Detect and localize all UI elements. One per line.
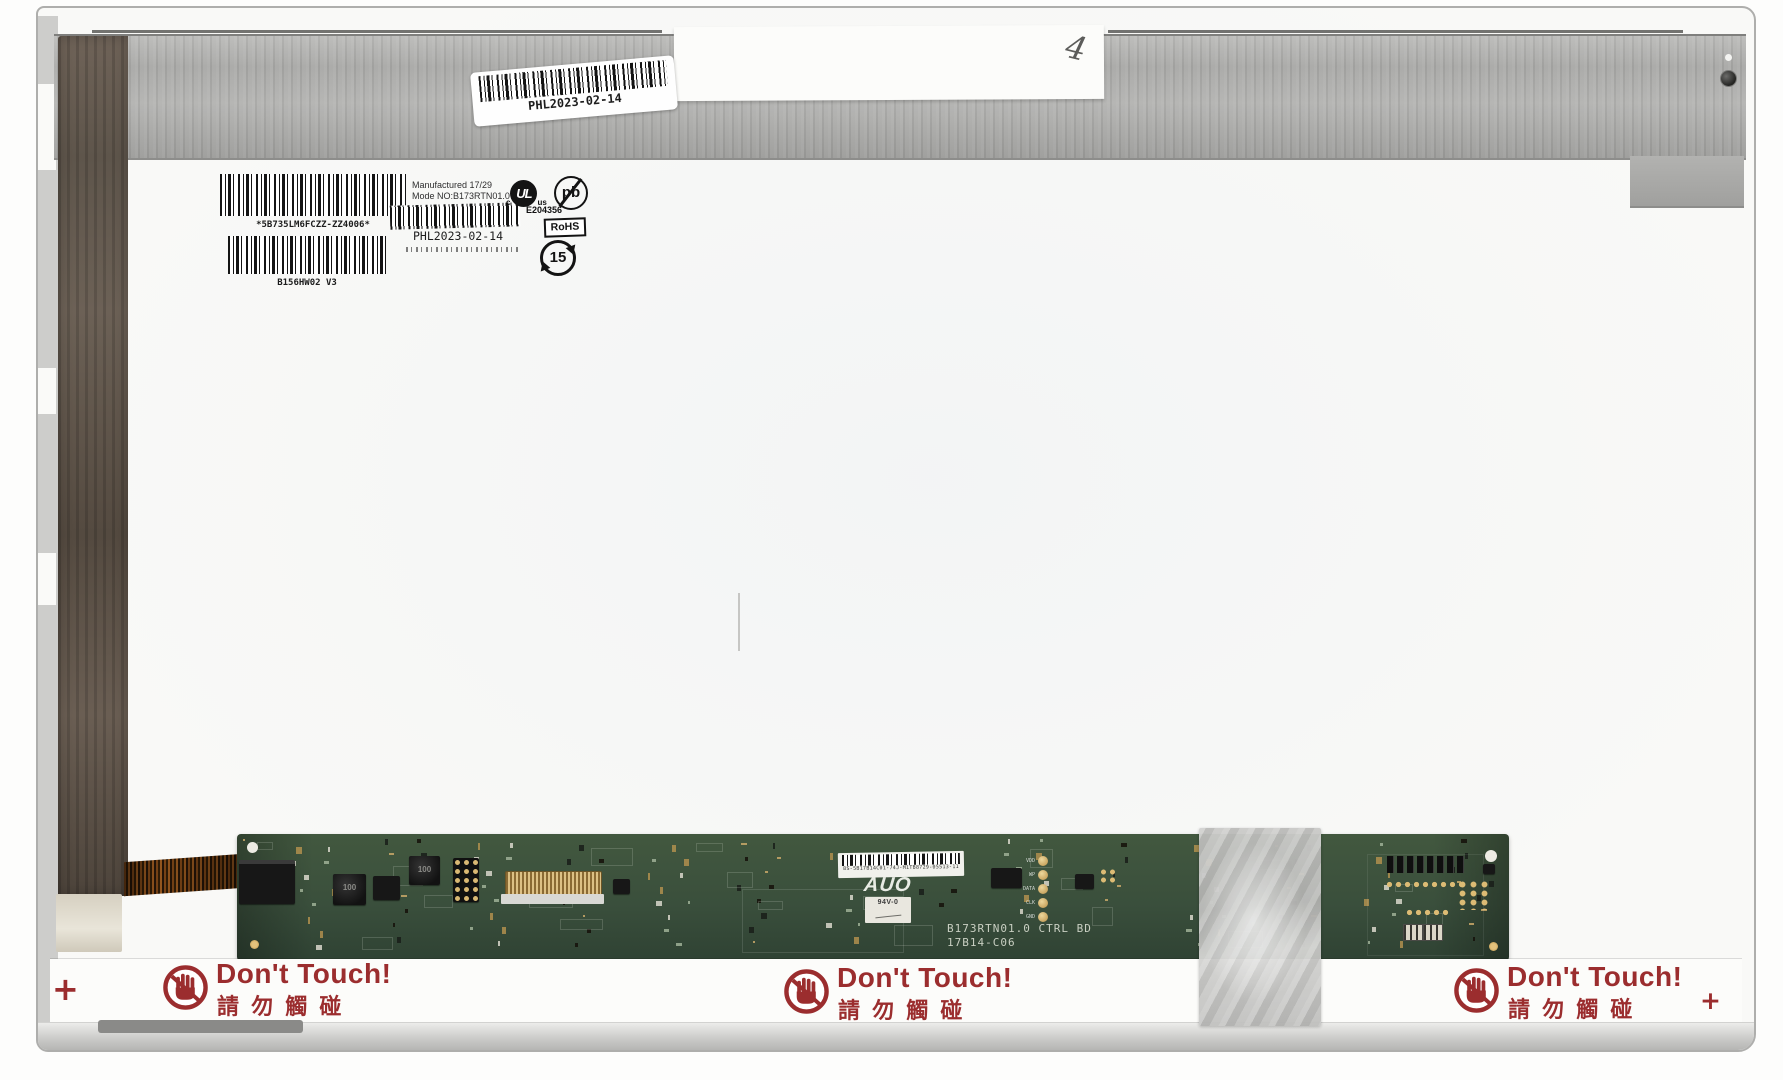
serial-caption: *5B735LM6FCZZ-ZZ4006* (206, 220, 420, 230)
warning-title: Don't Touch! (837, 962, 1012, 994)
ul-logo: UL (510, 180, 537, 207)
dip-switch (1423, 924, 1443, 941)
ic-chip (613, 879, 630, 894)
pcb-hole (247, 842, 258, 853)
pin-header (453, 858, 479, 902)
model-barcode (228, 236, 386, 274)
serial-barcode (220, 174, 406, 216)
mfg-model-text: Mode NO:B173RTN01.0 (412, 191, 510, 201)
mfg-date-text: Manufactured 17/29 (412, 180, 492, 190)
inductor-value: 100 (333, 874, 366, 905)
testpoint-pad (1038, 912, 1048, 922)
dip-switch (1403, 924, 1423, 941)
board-code: 17B14-C06 (947, 936, 1016, 949)
ul-file-number: E204356 (526, 205, 562, 215)
testpoint-label: VDD (1007, 858, 1035, 864)
warning-title: Don't Touch! (1507, 961, 1682, 993)
registration-mark: + (1700, 986, 1721, 1015)
lead-free-icon: pb (554, 176, 588, 210)
rohs-badge: RoHS (544, 217, 587, 237)
inductor-value: 100 (409, 856, 440, 885)
inductor: 100 (409, 856, 440, 885)
gold-pads (1099, 868, 1119, 884)
testpoint-pad (1038, 870, 1048, 880)
pcb-testpad (1489, 942, 1498, 951)
warning-subtitle: 請 勿 觸 碰 (838, 993, 965, 1025)
recycle-15-icon: 15 (540, 240, 576, 276)
auo-logo: AUO (863, 874, 913, 897)
warning-subtitle: 請 勿 觸 碰 (1508, 992, 1635, 1024)
pin-header-row (1387, 856, 1467, 873)
testpoint-label: CLK (1007, 900, 1035, 906)
warning-subtitle: 請 勿 觸 碰 (217, 989, 344, 1021)
handwritten-scrawl (875, 908, 902, 919)
gold-pad-grid (1457, 880, 1491, 910)
pcb-sticker-code: 8S-5B17B14C01-74J-M1TB8729-05513-11 (842, 864, 960, 872)
testpoint-pad (1038, 884, 1048, 894)
silver-tape-strip (1199, 828, 1321, 1026)
fineprint-row (406, 247, 518, 252)
testpoint-pad (1038, 856, 1048, 866)
flex-connector (239, 860, 295, 904)
eeprom-testpoints: VDD WP DATA CLK GND (1007, 854, 1048, 924)
pcb-testpad (250, 940, 259, 949)
dont-touch-warning: Don't Touch! 請 勿 觸 碰 (162, 958, 492, 1024)
inductor: 100 (333, 874, 366, 905)
ic-chip (1483, 864, 1495, 874)
pcb-hole (1485, 850, 1497, 862)
gold-pad-row (1405, 908, 1451, 917)
ic-chip (373, 876, 400, 900)
dont-touch-warning: Don't Touch! 請 勿 觸 碰 (783, 961, 1113, 1027)
mfg-barcode-caption: PHL2023-02-14 (394, 229, 522, 243)
lcd-panel-back: 4 PHL2023-02-14 *5B735LM6FCZZ-ZZ4006* B1… (36, 6, 1756, 1052)
no-touch-hand-icon (783, 968, 830, 1015)
ul-c-label: c (506, 198, 510, 207)
no-touch-hand-icon (1453, 967, 1500, 1014)
ic-chip (1075, 874, 1094, 889)
lcd-panel-photo: 4 PHL2023-02-14 *5B735LM6FCZZ-ZZ4006* B1… (0, 0, 1783, 1080)
testpoint-pad (1038, 898, 1048, 908)
warning-title: Don't Touch! (216, 958, 391, 990)
model-caption: B156HW02 V3 (228, 278, 386, 288)
connector-shield (501, 894, 604, 904)
gold-pad-row (1385, 880, 1461, 889)
testpoint-label: DATA (1007, 886, 1035, 892)
testpoint-label: GND (1007, 914, 1035, 920)
no-touch-hand-icon (162, 964, 209, 1011)
board-title: B173RTN01.0 CTRL BD (947, 922, 1092, 935)
testpoint-label: WP (1007, 872, 1035, 878)
flammability-box: 94V-0 (865, 897, 911, 923)
flammability-rating: 94V-0 (865, 899, 911, 906)
registration-mark: + (52, 970, 79, 1008)
mfg-barcode (390, 202, 521, 229)
